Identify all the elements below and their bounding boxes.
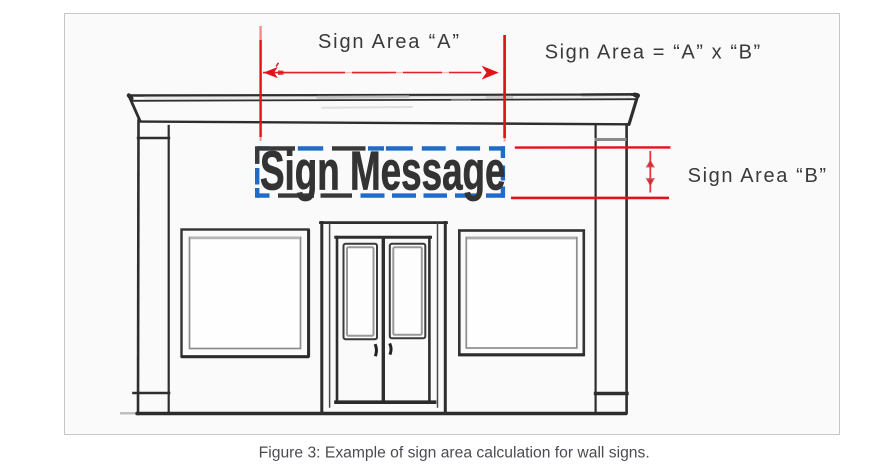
svg-text:Figure 3: Example of sign area: Figure 3: Example of sign area calculati… bbox=[259, 445, 650, 462]
svg-text:Sign Message: Sign Message bbox=[260, 139, 506, 201]
svg-text:Sign Area “B”: Sign Area “B” bbox=[688, 165, 827, 187]
svg-text:Sign Area “A”: Sign Area “A” bbox=[318, 31, 459, 53]
